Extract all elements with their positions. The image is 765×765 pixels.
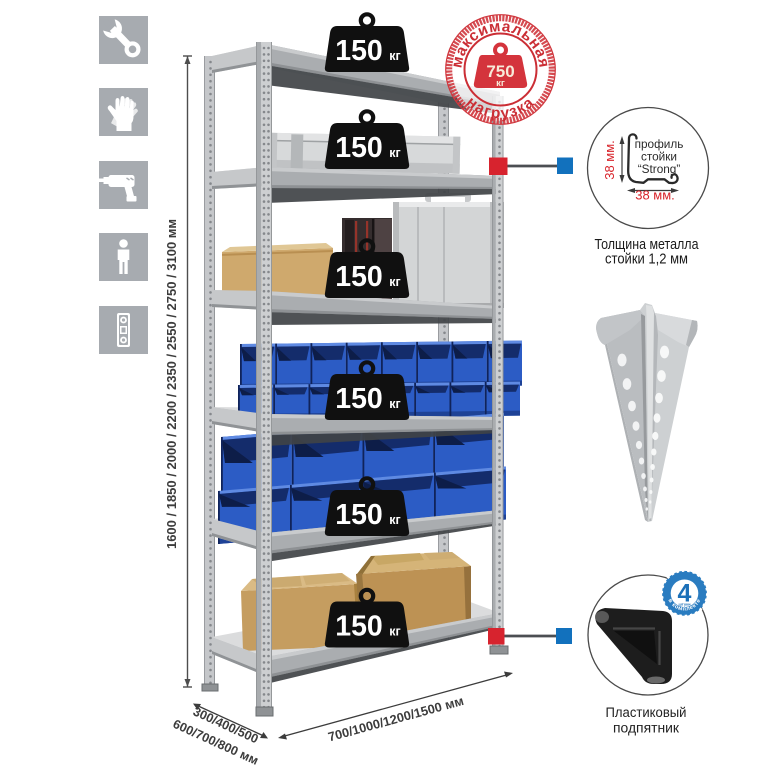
svg-text:подпятник: подпятник <box>613 721 680 737</box>
svg-text:38 мм.: 38 мм. <box>602 140 617 180</box>
svg-text:кг: кг <box>496 78 505 89</box>
svg-text:38 мм.: 38 мм. <box>635 188 675 203</box>
svg-text:стойки 1,2 мм: стойки 1,2 мм <box>605 251 688 268</box>
svg-text:кг: кг <box>389 625 400 639</box>
svg-text:кг: кг <box>389 275 400 289</box>
svg-text:кг: кг <box>389 513 400 527</box>
svg-text:150: 150 <box>335 132 383 164</box>
svg-text:Пластиковый: Пластиковый <box>606 705 687 721</box>
svg-text:1600 / 1850 / 2000 / 2200 / 23: 1600 / 1850 / 2000 / 2200 / 2350 / 2550 … <box>164 219 179 549</box>
svg-text:кг: кг <box>389 397 400 411</box>
svg-text:“Strong”: “Strong” <box>638 162 681 176</box>
svg-text:150: 150 <box>335 499 383 531</box>
svg-text:кг: кг <box>389 146 400 160</box>
svg-text:150: 150 <box>335 35 383 67</box>
svg-text:150: 150 <box>335 383 383 415</box>
svg-text:150: 150 <box>335 611 383 643</box>
svg-text:150: 150 <box>335 261 383 293</box>
svg-text:кг: кг <box>389 49 400 63</box>
